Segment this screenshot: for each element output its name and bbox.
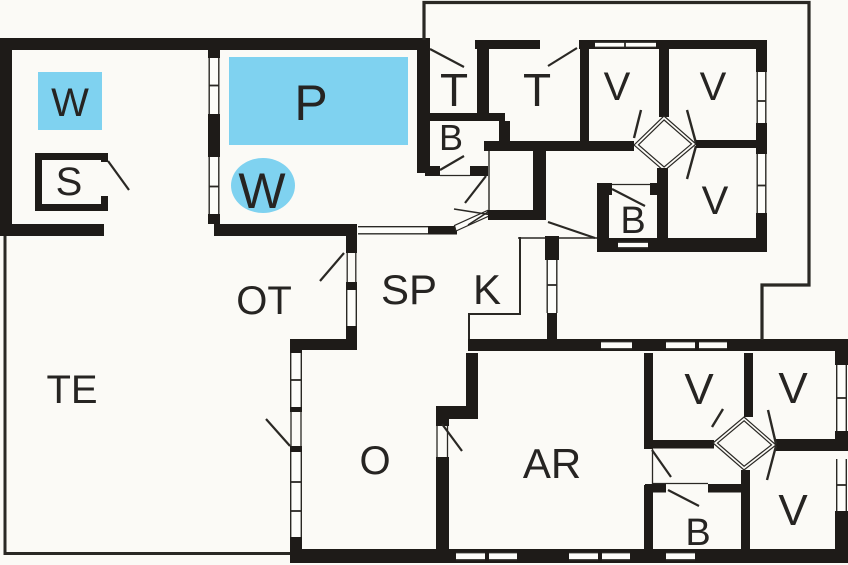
svg-text:P: P: [294, 75, 327, 131]
svg-text:V: V: [684, 365, 714, 414]
svg-text:B: B: [439, 117, 463, 158]
svg-text:SP: SP: [381, 266, 437, 313]
svg-text:B: B: [620, 200, 645, 242]
svg-text:B: B: [685, 512, 710, 554]
svg-text:V: V: [778, 486, 808, 535]
svg-text:V: V: [702, 179, 729, 223]
svg-text:T: T: [440, 64, 468, 116]
svg-text:V: V: [700, 65, 727, 109]
svg-text:AR: AR: [523, 440, 581, 487]
svg-text:T: T: [523, 64, 551, 116]
svg-text:S: S: [56, 160, 83, 204]
svg-text:W: W: [51, 81, 89, 125]
svg-text:V: V: [604, 65, 631, 109]
svg-text:TE: TE: [46, 368, 97, 412]
svg-text:V: V: [778, 364, 808, 413]
svg-text:OT: OT: [236, 279, 292, 323]
svg-text:W: W: [238, 163, 286, 219]
svg-text:K: K: [473, 266, 501, 313]
svg-text:O: O: [359, 439, 390, 483]
